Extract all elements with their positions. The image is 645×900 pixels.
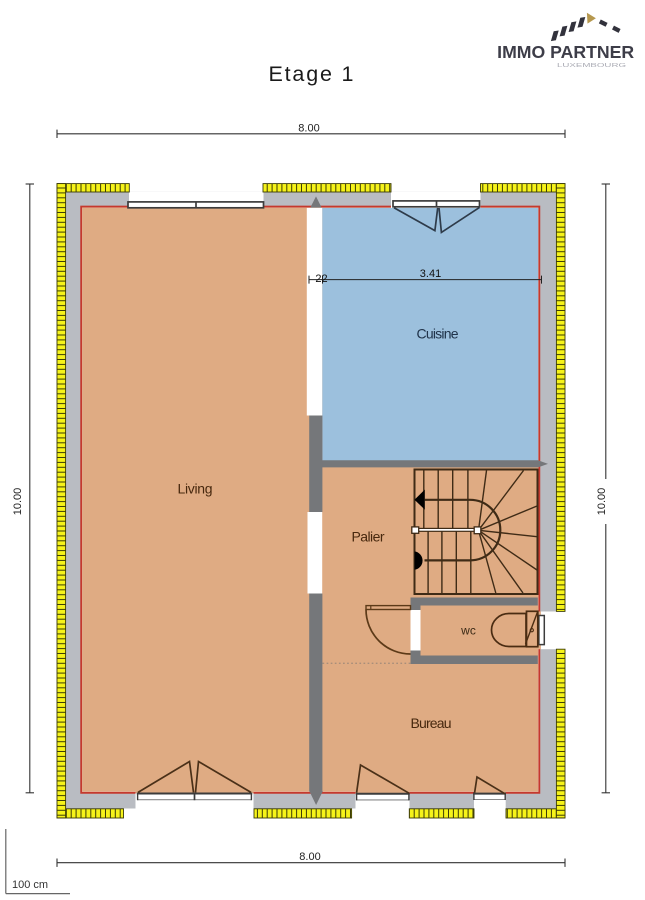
svg-text:10.00: 10.00 [596,488,608,516]
svg-text:wc: wc [460,624,476,638]
svg-text:Etage 1: Etage 1 [269,62,354,86]
svg-text:3.41: 3.41 [420,268,441,280]
svg-text:Palier: Palier [352,529,385,545]
svg-text:Cuisine: Cuisine [417,326,459,342]
svg-text:100 cm: 100 cm [12,879,48,891]
svg-text:22: 22 [315,273,327,285]
svg-text:Living: Living [178,480,213,496]
svg-text:IMMO PARTNER: IMMO PARTNER [497,42,635,62]
svg-text:10.00: 10.00 [12,488,24,516]
svg-text:LUXEMBOURG: LUXEMBOURG [557,63,626,69]
svg-text:8.00: 8.00 [298,123,319,135]
svg-text:Bureau: Bureau [411,715,452,731]
svg-text:8.00: 8.00 [299,851,320,863]
